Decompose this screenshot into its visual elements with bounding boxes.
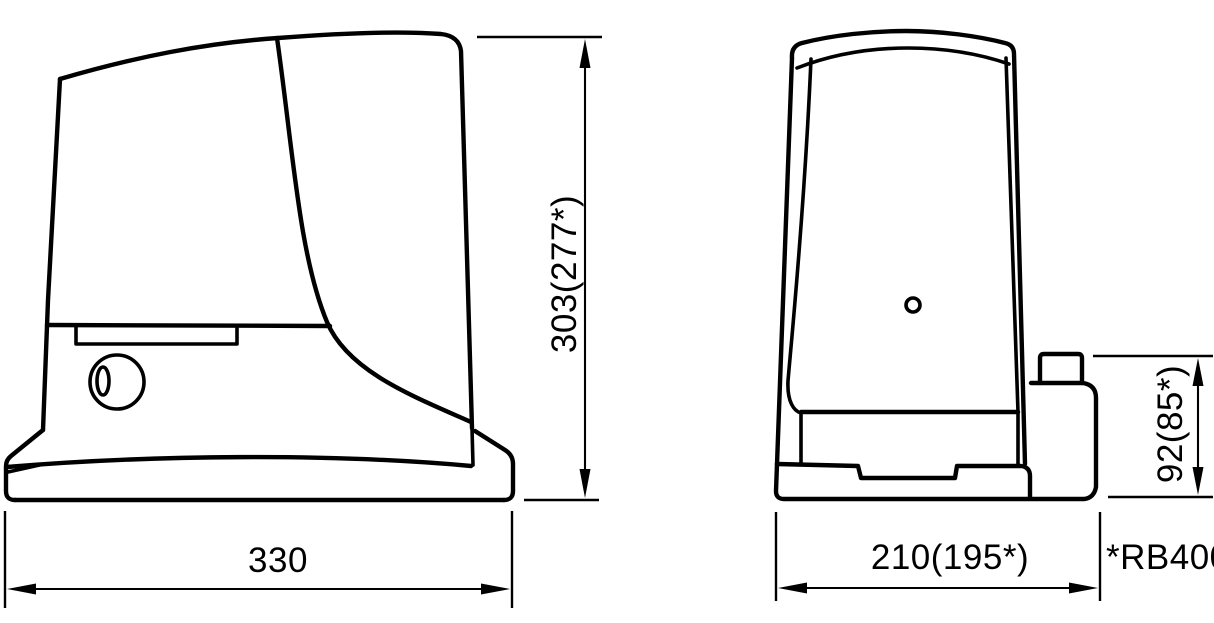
side-view-right-edge-lower xyxy=(472,428,473,465)
side-view-base-top xyxy=(7,457,471,467)
dim-height-label: 303(277*) xyxy=(545,195,584,353)
dim-depth-arrow-right xyxy=(1069,583,1098,594)
dim-width-arrow-left xyxy=(7,584,36,595)
front-view-screw-hole xyxy=(906,298,920,312)
model-footnote: *RB400 xyxy=(1106,538,1214,577)
dim-width-arrow-right xyxy=(481,584,510,595)
front-view-top-outline xyxy=(792,31,1025,464)
dim-pinion-arrow-up xyxy=(1193,358,1204,386)
keyhole-slot-icon xyxy=(97,367,109,395)
front-view-housing-tab xyxy=(1040,354,1082,383)
side-view-left-edge xyxy=(43,79,60,430)
side-view xyxy=(6,33,513,500)
dim-depth-label: 210(195*) xyxy=(871,538,1029,577)
dim-height: 303(277*) xyxy=(477,37,602,500)
dim-height-arrow-down xyxy=(580,469,591,498)
side-view-right-foot xyxy=(475,431,513,500)
side-view-vent-slot xyxy=(76,326,237,344)
drawing-page: 303(277*) 330 210(195*) 92(85 xyxy=(0,0,1214,623)
dim-depth: 210(195*) xyxy=(776,512,1100,601)
dim-height-arrow-up xyxy=(580,39,591,68)
side-view-cover-seam xyxy=(277,38,471,422)
dim-width: 330 xyxy=(5,511,512,608)
front-view-base-outline xyxy=(777,464,1030,498)
technical-drawing-canvas: 303(277*) 330 210(195*) 92(85 xyxy=(0,0,1214,623)
dim-pinion-height: 92(85*) xyxy=(1093,356,1213,497)
side-view-panel-line xyxy=(47,325,330,326)
dim-width-label: 330 xyxy=(248,541,308,580)
front-view-top-inner-line xyxy=(797,48,1009,68)
dim-pinion-height-label: 92(85*) xyxy=(1151,365,1190,483)
front-view xyxy=(776,31,1096,499)
dim-depth-arrow-left xyxy=(778,583,807,594)
side-view-outline xyxy=(60,33,472,428)
front-view-release-housing xyxy=(776,383,1096,499)
dim-pinion-arrow-down xyxy=(1193,467,1204,495)
